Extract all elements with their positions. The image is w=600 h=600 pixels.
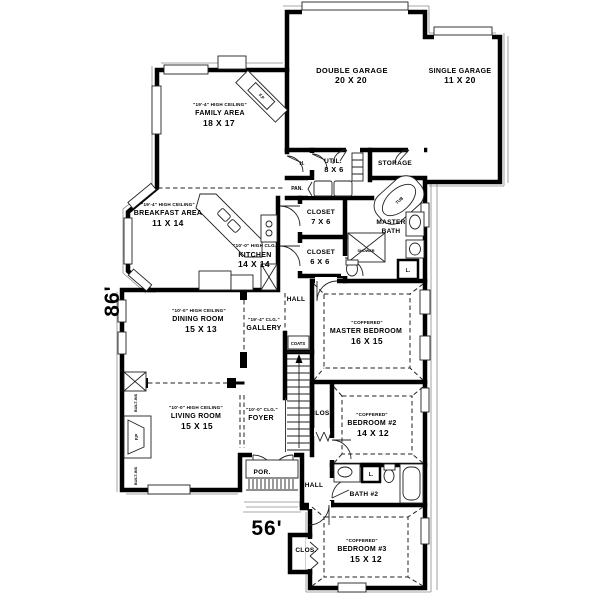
room-label-family: FAMILY AREA — [195, 110, 245, 117]
room-label-closet7x6: CLOSET — [307, 209, 335, 216]
room-label-master-bath-2: BATH — [382, 228, 401, 235]
kitchen-counter — [196, 194, 277, 290]
stair-up-arrow — [296, 354, 303, 363]
room-label-living: LIVING ROOM — [171, 413, 221, 420]
room-dims-closet7x6: 7 X 6 — [311, 217, 331, 226]
room-dims-single-garage: 11 X 20 — [444, 75, 476, 85]
room-dims-family: 18 X 17 — [203, 118, 235, 128]
room-dims-bedroom3: 15 X 12 — [350, 554, 382, 564]
label-fireplace-living: F.P — [134, 434, 139, 440]
label-builtins-upper: BUILT-INS — [134, 393, 138, 412]
ceiling-note-dining: "10'-0" HIGH CEILING" — [172, 308, 226, 313]
dimension-width: 56' — [251, 517, 282, 540]
room-label-single-garage: SINGLE GARAGE — [429, 68, 492, 75]
room-label-bath2: BATH #2 — [350, 491, 379, 498]
label-closet-bedroom3: CLOS. — [295, 547, 316, 554]
ceiling-note-living: "10'-0" HIGH CEILING" — [169, 405, 223, 410]
room-label-foyer: FOYER — [248, 415, 274, 422]
room-label-kitchen: KITCHEN — [238, 252, 271, 259]
room-dims-kitchen: 14 X 14 — [238, 259, 270, 269]
room-label-master-bath-1: MASTER — [376, 219, 405, 226]
chimney — [218, 56, 246, 69]
room-dims-double-garage: 20 X 20 — [335, 75, 367, 85]
floor-plan-canvas: DOUBLE GARAGE 20 X 20 SINGLE GARAGE 11 X… — [0, 0, 600, 600]
bath2-fixtures — [334, 464, 423, 503]
label-linen-master: L. — [406, 268, 411, 274]
room-dims-dining: 15 X 13 — [185, 324, 217, 334]
ceiling-note-breakfast: "19'-4" HIGH CEILING" — [141, 202, 195, 207]
kitchen-island — [199, 271, 231, 290]
room-dims-breakfast: 11 X 14 — [152, 218, 184, 228]
room-label-storage: STORAGE — [378, 160, 412, 167]
room-dims-bedroom2: 14 X 12 — [357, 428, 389, 438]
ceiling-note-master-bedroom: "COFFERED" — [351, 320, 383, 325]
room-label-utility: UTIL. — [324, 158, 342, 165]
ceiling-note-family: "19'-4" HIGH CEILING" — [193, 102, 247, 107]
double-garage-door-header — [302, 2, 408, 10]
room-label-double-garage: DOUBLE GARAGE — [316, 66, 388, 75]
label-builtins-lower: BUILT-INS — [134, 466, 138, 485]
ceiling-note-kitchen: "10'-0" HIGH CLG." — [233, 243, 278, 248]
ceiling-note-bedroom3: "COFFERED" — [346, 538, 378, 543]
single-garage-door-header — [434, 27, 492, 35]
room-dims-utility: 8 X 6 — [324, 165, 344, 174]
room-label-closet6x6: CLOSET — [307, 249, 335, 256]
floor-plan-drawing: DOUBLE GARAGE 20 X 20 SINGLE GARAGE 11 X… — [0, 0, 600, 600]
label-shower: SHOWER — [357, 249, 374, 253]
room-dims-closet6x6: 6 X 6 — [310, 257, 330, 266]
label-closet-bedroom2: CLOS. — [310, 410, 331, 417]
label-linen-bath2: L. — [369, 472, 374, 478]
room-label-master-bedroom: MASTER BEDROOM — [330, 328, 402, 335]
ceiling-note-bedroom2: "COFFERED" — [356, 412, 388, 417]
label-hall-abbrev: H. — [300, 161, 306, 167]
room-label-bedroom2: BEDROOM #2 — [347, 420, 396, 427]
room-label-porch: POR. — [253, 469, 270, 476]
ceiling-note-gallery: "19'-4" CLG." — [248, 317, 280, 322]
refrigerator — [261, 215, 277, 242]
bath2-toilet — [384, 470, 394, 483]
room-label-breakfast: BREAKFAST AREA — [134, 210, 203, 217]
label-coats: COATS — [291, 341, 306, 346]
room-label-bedroom3: BEDROOM #3 — [337, 546, 386, 553]
dimension-height: 86' — [101, 285, 124, 316]
fixtures — [124, 71, 430, 503]
room-dims-master-bedroom: 16 X 15 — [351, 336, 383, 346]
ceiling-note-foyer: "10'-0" CLG." — [246, 407, 278, 412]
room-label-gallery: GALLERY — [246, 325, 281, 332]
room-label-dining: DINING ROOM — [172, 316, 224, 323]
room-dims-living: 15 X 15 — [181, 421, 213, 431]
label-hall-rear: HALL — [305, 482, 324, 489]
label-hall-center: HALL — [287, 296, 306, 303]
label-pantry: PAN. — [291, 186, 303, 192]
